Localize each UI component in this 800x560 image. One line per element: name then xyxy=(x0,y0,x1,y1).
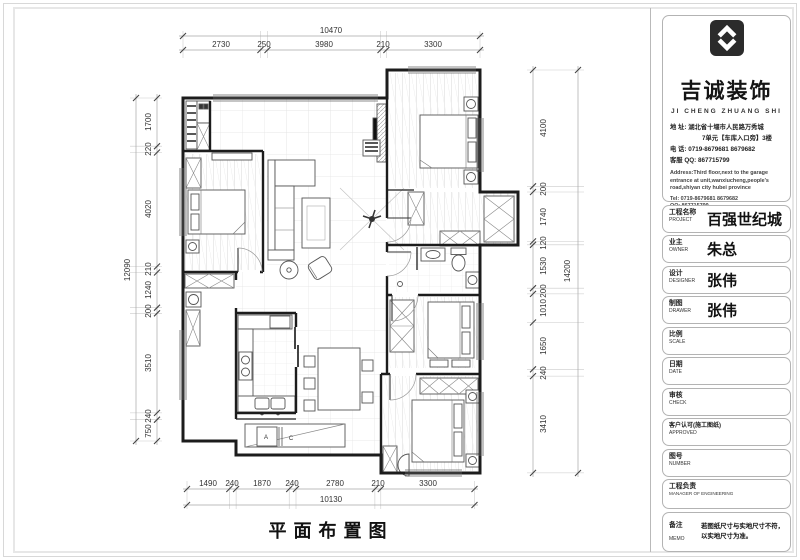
dim-right-3: 120 xyxy=(539,236,548,250)
title-block: 吉诚装饰 JI CHENG ZHUANG SHI 地 址: 湖北省十堰市人民路万… xyxy=(662,15,791,552)
dim-right-9: 3410 xyxy=(539,415,548,433)
row-memo: 备注 MEMO 若图纸尺寸与实地尺寸不符， 以实地尺寸为准。 xyxy=(662,512,791,552)
dim-left-total: 12090 xyxy=(123,258,132,281)
dim-bottom-4: 2780 xyxy=(326,479,344,488)
row-date: 日期 DATE xyxy=(662,357,791,385)
dim-left-7: 240 xyxy=(144,409,153,423)
company-address: 地 址: 湖北省十堰市人民路万秀城 7单元【车库入口旁】3楼 电 话: 0719… xyxy=(663,122,790,211)
dim-left-0: 1700 xyxy=(144,113,153,131)
fridge-icon xyxy=(270,316,290,328)
wardrobe-icon xyxy=(484,196,514,242)
dim-left-8: 750 xyxy=(144,424,153,438)
company-logo-icon xyxy=(709,20,745,56)
dim-top-0: 2730 xyxy=(212,40,230,49)
dim-right-1: 200 xyxy=(539,182,548,196)
service-strip xyxy=(245,424,345,447)
dim-right-6: 1010 xyxy=(539,299,548,317)
company-name-en: JI CHENG ZHUANG SHI xyxy=(663,108,790,115)
row-value: 朱总 xyxy=(707,239,737,260)
company-header: 吉诚装饰 JI CHENG ZHUANG SHI 地 址: 湖北省十堰市人民路万… xyxy=(662,15,791,202)
row-value: 张伟 xyxy=(707,269,737,290)
dim-top-3: 210 xyxy=(376,40,390,49)
qq-line: 客服 QQ: 867715799 xyxy=(670,155,783,166)
company-name: 吉诚装饰 xyxy=(663,75,790,105)
dresser xyxy=(212,153,252,160)
row-label-en: DATE xyxy=(669,369,784,375)
row-owner: 业主 OWNER 朱总 xyxy=(662,235,791,263)
dim-right-5: 200 xyxy=(539,284,548,298)
dim-top-2: 3980 xyxy=(315,40,333,49)
row-number: 图号 NUMBER xyxy=(662,449,791,477)
row-label-cn: 客户认可(施工图纸) xyxy=(669,422,784,430)
row-scale: 比例 SCALE xyxy=(662,327,791,355)
dim-left-4: 1240 xyxy=(144,281,153,299)
label-c: C xyxy=(289,436,294,442)
dim-right-total: 14200 xyxy=(563,259,572,282)
dim-left-3: 210 xyxy=(144,262,153,276)
utility-window xyxy=(180,330,186,400)
dim-left-1: 220 xyxy=(144,142,153,156)
dim-top-4: 3300 xyxy=(424,40,442,49)
row-value: 张伟 xyxy=(707,300,737,321)
dim-bottom-total: 10130 xyxy=(320,495,343,504)
memo-line: 以实地尺寸为准。 xyxy=(701,532,784,542)
dim-left-6: 3510 xyxy=(144,354,153,372)
floor-plan: 10470 2730 250 3980 210 3300 1490 240 18… xyxy=(0,0,655,560)
row-label-en: NUMBER xyxy=(669,461,784,467)
row-manager: 工程负责 MANAGER OF ENGINEERING xyxy=(662,479,791,509)
dim-right-7: 1650 xyxy=(539,337,548,355)
address-line-en: entrance at unit,wanxiucheng,people's xyxy=(670,178,783,186)
sofa-icon xyxy=(268,160,275,258)
label-a: A xyxy=(264,435,268,441)
row-label-cn: 审核 xyxy=(669,392,784,400)
memo-text: 若图纸尺寸与实地尺寸不符， 以实地尺寸为准。 xyxy=(701,522,784,542)
phone-line: 电 话: 0719-8679681 8679682 xyxy=(670,144,783,155)
passage-floor xyxy=(236,272,267,313)
wardrobe-icon xyxy=(440,231,480,246)
dim-top-1: 250 xyxy=(257,40,271,49)
row-designer: 设计 DESIGNER 张伟 xyxy=(662,266,791,294)
utility-cabinets xyxy=(185,274,234,346)
row-label-en: APPROVED xyxy=(669,430,784,436)
tel-line-en: Tel: 0719-8679681 8679682 xyxy=(670,196,783,204)
dim-bottom-2: 1870 xyxy=(253,479,271,488)
dim-right-8: 240 xyxy=(539,366,548,380)
row-label-en: MANAGER OF ENGINEERING xyxy=(669,491,784,497)
master-top-window xyxy=(408,67,476,73)
dim-right-2: 1740 xyxy=(539,208,548,226)
dining-table-icon xyxy=(318,348,360,410)
dim-bottom-0: 1490 xyxy=(199,479,217,488)
entry-closet xyxy=(186,101,210,150)
plan-title: 平面布置图 xyxy=(269,520,394,541)
dim-bottom-5: 210 xyxy=(371,479,385,488)
sink-icon xyxy=(255,398,269,409)
address-line-en: Address:Third floor,next to the garage xyxy=(670,170,783,178)
row-label-en: SCALE xyxy=(669,339,784,345)
dim-left-5: 200 xyxy=(144,304,153,318)
dim-bottom-3: 240 xyxy=(285,479,299,488)
row-check: 审核 CHECK xyxy=(662,388,791,416)
toilet-icon xyxy=(451,248,466,255)
row-label-cn: 图号 xyxy=(669,453,784,461)
row-project: 工程名称 PROJECT 百强世纪城 xyxy=(662,205,791,233)
dim-bottom-1: 240 xyxy=(225,479,239,488)
dim-bottom-6: 3300 xyxy=(419,479,437,488)
memo-line: 若图纸尺寸与实地尺寸不符， xyxy=(701,522,784,532)
floor-drain-icon xyxy=(398,282,403,287)
row-drawer: 制图 DRAWER 张伟 xyxy=(662,296,791,324)
row-label-cn: 日期 xyxy=(669,361,784,369)
dim-left-2: 4020 xyxy=(144,200,153,218)
row-label-cn: 工程负责 xyxy=(669,483,784,491)
row-value: 百强世纪城 xyxy=(707,208,782,229)
dim-top-total: 10470 xyxy=(320,26,343,35)
row-label-en: CHECK xyxy=(669,400,784,406)
row-approved: 客户认可(施工图纸) APPROVED xyxy=(662,418,791,446)
address-line-en: road,shiyan city hubei province xyxy=(670,185,783,193)
dim-right-4: 1530 xyxy=(539,257,548,275)
dim-right-0: 4100 xyxy=(539,119,548,137)
row-label-cn: 比例 xyxy=(669,331,784,339)
address-line: 地 址: 湖北省十堰市人民路万秀城 xyxy=(670,122,783,133)
address-line: 7单元【车库入口旁】3楼 xyxy=(670,133,783,144)
